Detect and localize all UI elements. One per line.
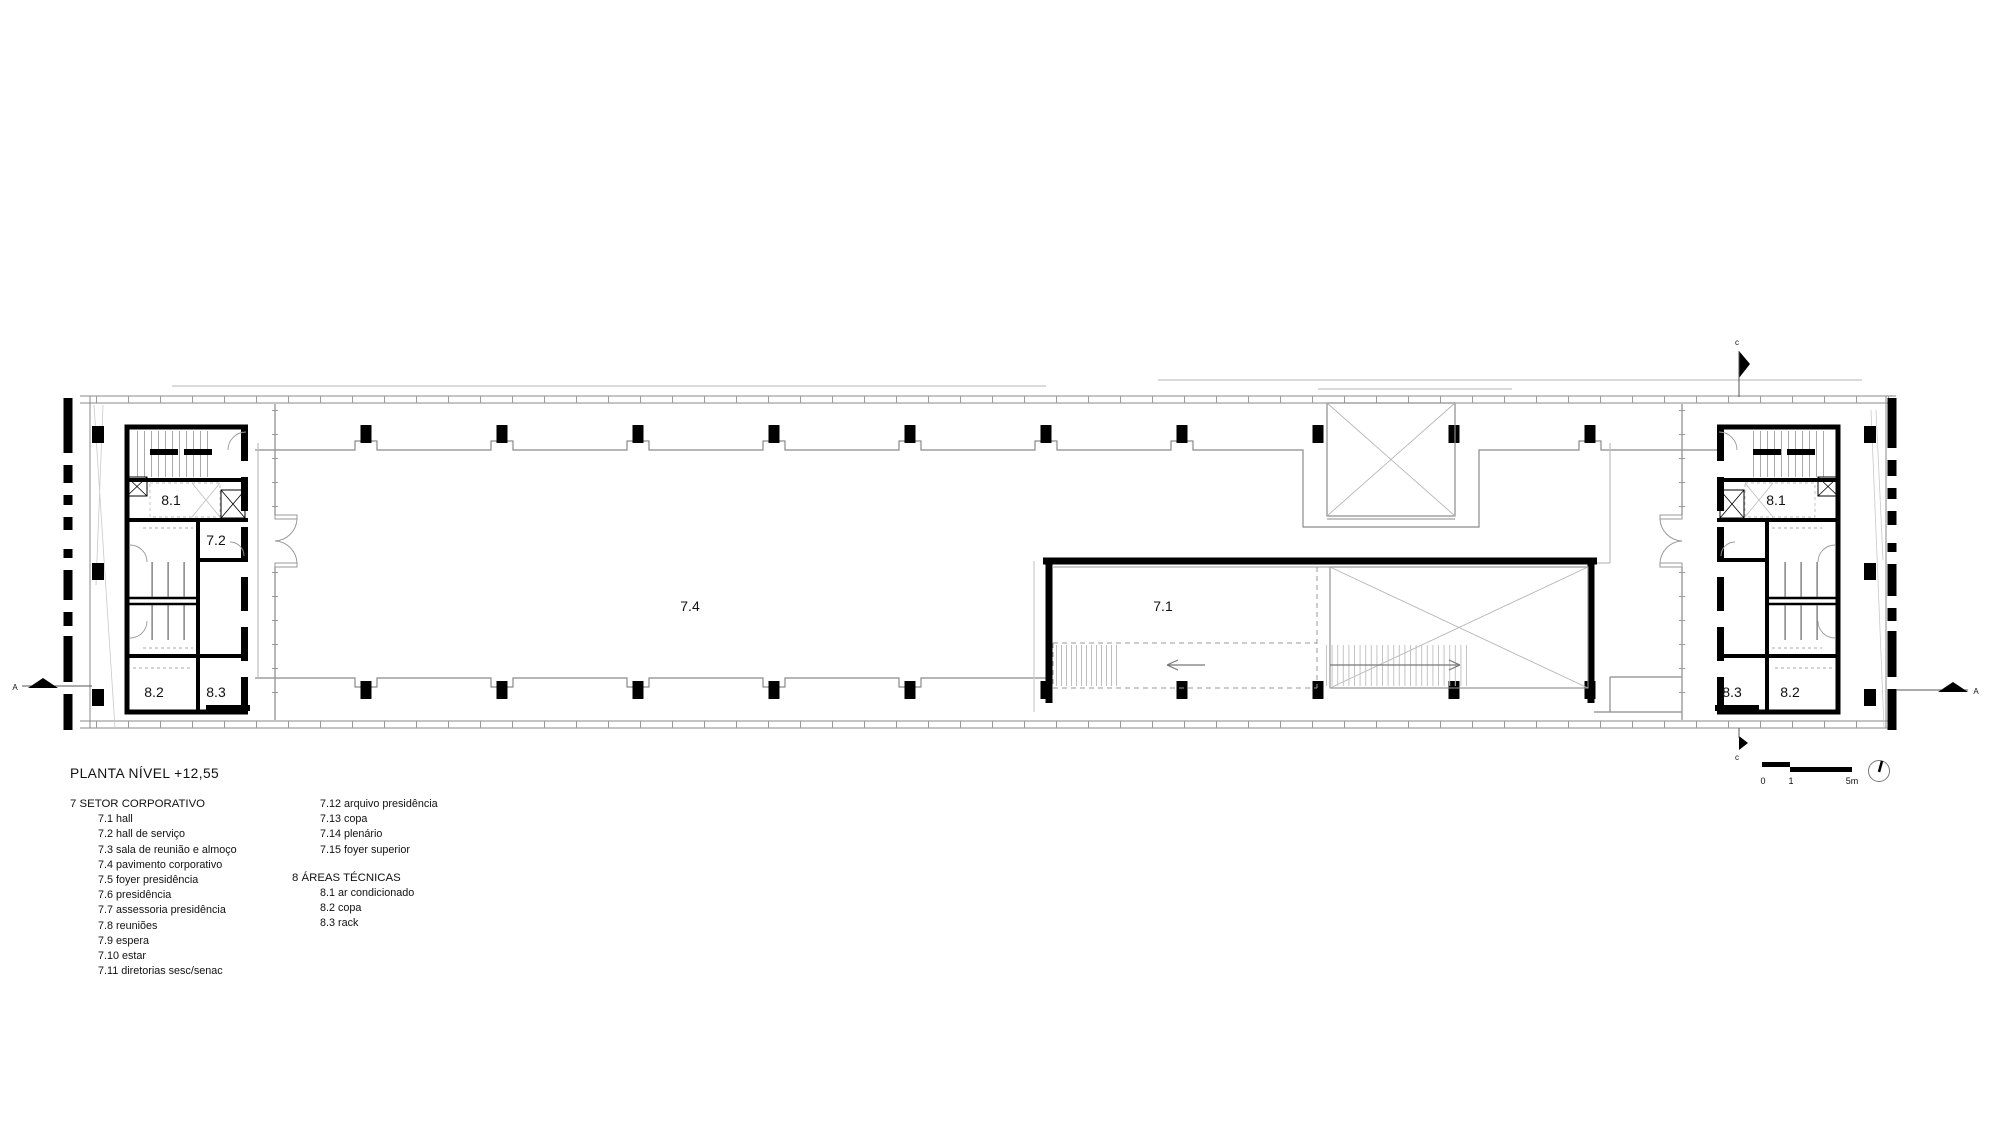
section-marker-a-left: A <box>12 678 92 692</box>
legend-column-2: 7.12 arquivo presidência 7.13 copa 7.14 … <box>292 797 438 932</box>
section-markers: A A c c <box>12 338 1979 762</box>
svg-text:c: c <box>1735 338 1739 347</box>
legend-group7-list-continued: 7.12 arquivo presidência 7.13 copa 7.14 … <box>292 797 438 858</box>
legend-group7-list: 7.1 hall 7.2 hall de serviço 7.3 sala de… <box>70 812 237 979</box>
legend-item: 7.8 reuniões <box>98 919 237 934</box>
legend-item: 7.5 foyer presidência <box>98 873 237 888</box>
right-core <box>1715 427 1838 712</box>
legend-item: 7.3 sala de reunião e almoço <box>98 843 237 858</box>
legend-item: 7.9 espera <box>98 934 237 949</box>
legend-item: 7.2 hall de serviço <box>98 827 237 842</box>
svg-text:c: c <box>1735 753 1739 762</box>
edge-diagonal-lines <box>94 405 1884 728</box>
legend-item: 8.3 rack <box>320 916 438 931</box>
legend-item: 7.1 hall <box>98 812 237 827</box>
room-label-81-left: 8.1 <box>161 492 181 508</box>
room-label-83-right: 8.3 <box>1722 684 1742 700</box>
room-label-82-left: 8.2 <box>144 684 164 700</box>
legend-item: 7.11 diretorias sesc/senac <box>98 964 237 979</box>
room-label-74: 7.4 <box>680 598 700 614</box>
north-indicator-icon <box>1869 761 1890 782</box>
svg-text:5m: 5m <box>1846 776 1859 786</box>
section-arrow-icon <box>28 678 58 688</box>
legend-item: 7.13 copa <box>320 812 438 827</box>
section-flag-icon <box>1739 351 1750 378</box>
floor-plan: 8.1 7.2 8.2 8.3 7.4 7.1 8.1 8.3 8.2 A A … <box>0 0 2000 1125</box>
section-arrow-icon <box>1938 682 1968 692</box>
perimeter-walls <box>255 441 1717 712</box>
legend-item: 7.7 assessoria presidência <box>98 903 237 918</box>
legend-item: 7.10 estar <box>98 949 237 964</box>
section-marker-c-bottom: c <box>1735 728 1748 762</box>
legend-item: 7.12 arquivo presidência <box>320 797 438 812</box>
legend-item: 8.2 copa <box>320 901 438 916</box>
facade-mullion-ticks <box>96 400 1896 725</box>
left-core <box>127 427 250 712</box>
legend-item: 7.6 presidência <box>98 888 237 903</box>
facade-lines <box>80 380 1896 728</box>
legend-item: 7.14 plenário <box>320 827 438 842</box>
room-label-81-right: 8.1 <box>1766 492 1786 508</box>
section-flag-icon <box>1739 736 1748 750</box>
legend-column-1: 7 SETOR CORPORATIVO 7.1 hall 7.2 hall de… <box>70 797 237 979</box>
room-label-72-left: 7.2 <box>206 532 226 548</box>
cut-edge-walls <box>68 398 1892 730</box>
svg-text:A: A <box>12 683 18 692</box>
room-labels: 8.1 7.2 8.2 8.3 7.4 7.1 8.1 8.3 8.2 <box>144 492 1800 700</box>
room-label-83-left: 8.3 <box>206 684 226 700</box>
svg-text:1: 1 <box>1788 776 1793 786</box>
drawing-sheet: 8.1 7.2 8.2 8.3 7.4 7.1 8.1 8.3 8.2 A A … <box>0 0 2000 1125</box>
top-void-shaft <box>1327 403 1455 519</box>
page-title: PLANTA NÍVEL +12,55 <box>70 766 219 781</box>
legend-group8-list: 8.1 ar condicionado 8.2 copa 8.3 rack <box>292 886 438 932</box>
structural-columns <box>92 425 1876 706</box>
legend-spacer <box>292 858 438 871</box>
legend-item: 7.15 foyer superior <box>320 843 438 858</box>
legend-item: 7.4 pavimento corporativo <box>98 858 237 873</box>
section-marker-a-right: A <box>1896 682 1979 696</box>
legend-group8-header: 8 ÁREAS TÉCNICAS <box>292 871 438 886</box>
svg-text:0: 0 <box>1760 776 1765 786</box>
legend-item: 8.1 ar condicionado <box>320 886 438 901</box>
scale-bar: 0 1 5m <box>1760 762 1858 786</box>
room-label-71: 7.1 <box>1153 598 1173 614</box>
section-marker-c-top: c <box>1735 338 1750 397</box>
svg-text:A: A <box>1973 687 1979 696</box>
room-label-82-right: 8.2 <box>1780 684 1800 700</box>
legend-group7-header: 7 SETOR CORPORATIVO <box>70 797 237 812</box>
